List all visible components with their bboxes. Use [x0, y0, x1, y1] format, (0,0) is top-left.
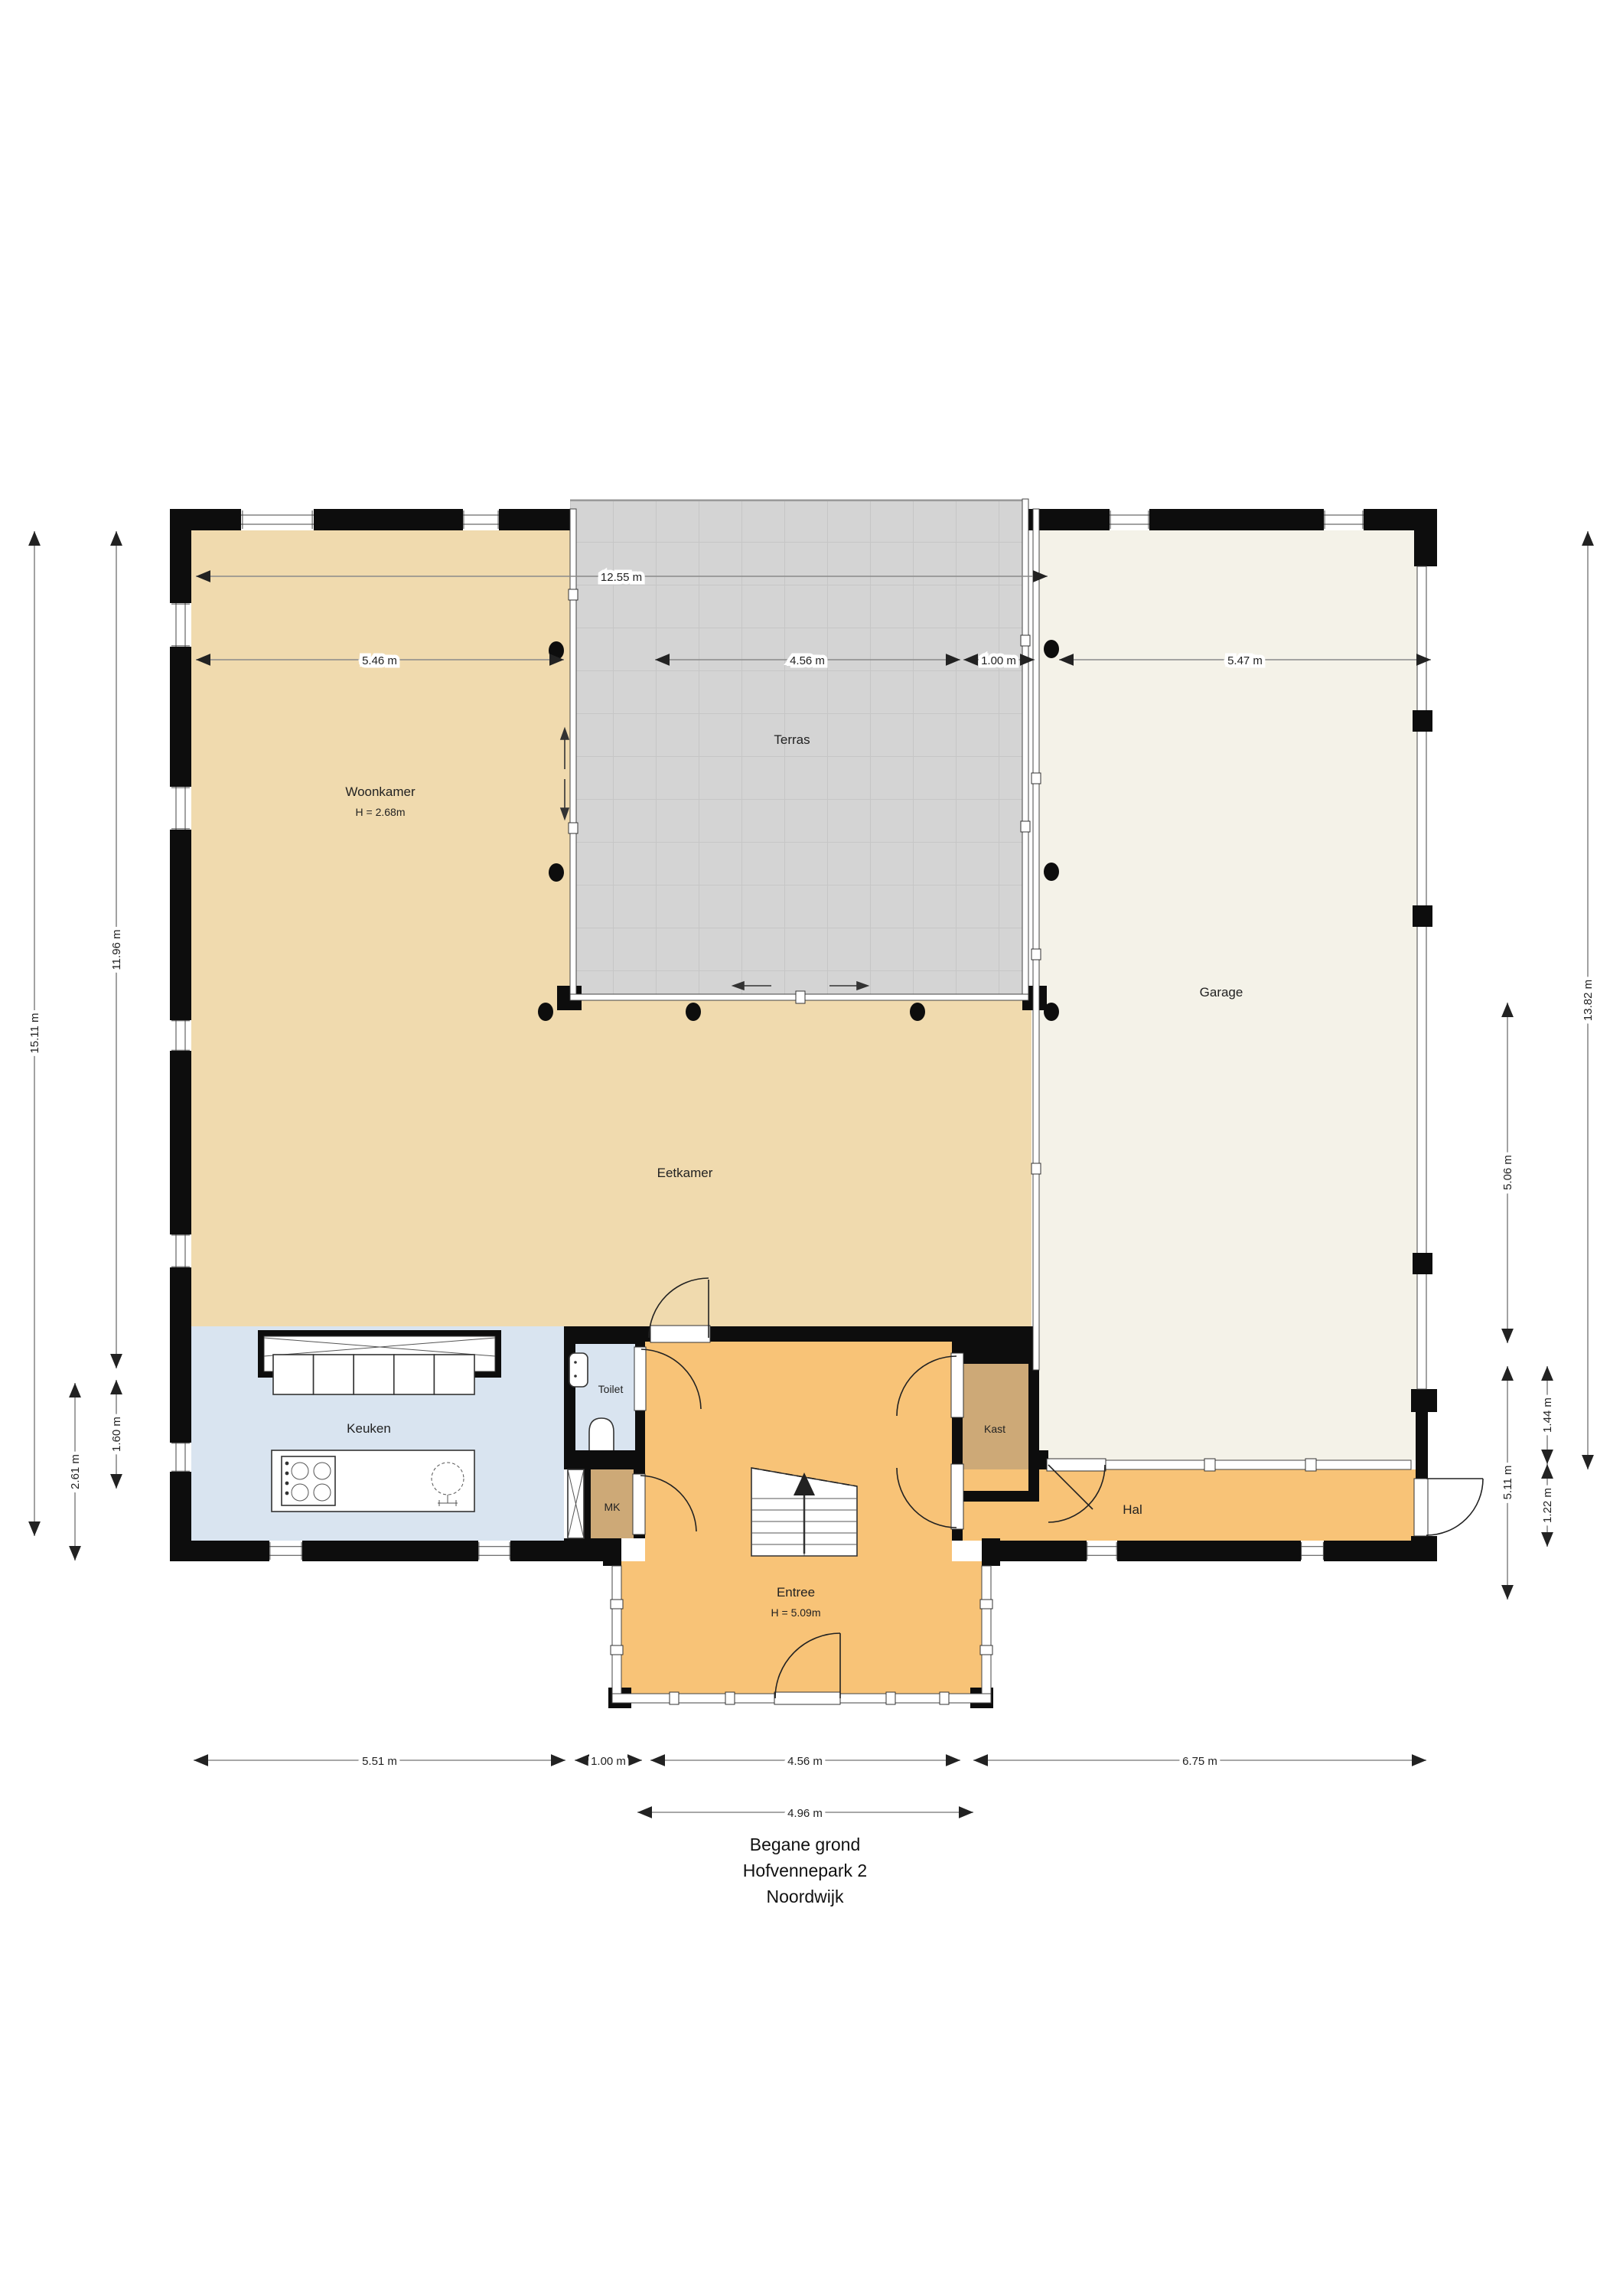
label-toilet: Toilet [598, 1383, 624, 1395]
wc-icon [589, 1418, 614, 1450]
dim-right-b: 1.22 m [1541, 1488, 1554, 1523]
dim-left-keuken: 2.61 m [69, 1454, 82, 1489]
toilet-sink-icon [569, 1353, 588, 1387]
floorplan-drawing: Woonkamer H = 2.68m Terras Garage Eetkam… [0, 0, 1623, 2296]
dim-bottom-entree: 4.96 m [787, 1807, 823, 1820]
title-city: Noordwijk [767, 1887, 844, 1906]
label-woonkamer-height: H = 2.68m [356, 806, 406, 818]
label-woonkamer: Woonkamer [345, 784, 416, 799]
stove-icon [282, 1456, 335, 1505]
dim-top-4: 5.47 m [1227, 654, 1263, 667]
dim-bottom-4: 6.75 m [1182, 1755, 1217, 1768]
dim-right-total: 13.82 m [1582, 980, 1595, 1021]
dim-right-lower: 5.11 m [1501, 1466, 1514, 1500]
label-eetkamer: Eetkamer [657, 1166, 713, 1180]
kitchen-island [272, 1450, 474, 1512]
dim-top-3: 1.00 m [981, 654, 1016, 667]
kitchen-counter [258, 1330, 501, 1394]
title-floor: Begane grond [750, 1835, 861, 1854]
dim-left-counter: 1.60 m [110, 1417, 123, 1452]
label-mk: MK [605, 1501, 621, 1513]
label-garage: Garage [1200, 985, 1243, 1000]
dim-bottom-1: 5.51 m [362, 1755, 397, 1768]
floorplan-page: Woonkamer H = 2.68m Terras Garage Eetkam… [0, 0, 1623, 2296]
dim-bottom-3: 4.56 m [787, 1755, 823, 1768]
label-entree: Entree [777, 1585, 815, 1600]
label-terras: Terras [774, 732, 810, 747]
label-hal: Hal [1123, 1502, 1142, 1517]
dim-right-upper: 5.06 m [1501, 1155, 1514, 1190]
dim-top-1: 5.46 m [362, 654, 397, 667]
dim-left-total: 15.11 m [28, 1013, 41, 1053]
dim-bottom-2: 1.00 m [591, 1755, 626, 1768]
title-address: Hofvennepark 2 [743, 1861, 867, 1880]
room-entree-vestibule [621, 1561, 982, 1694]
hal-exterior-door [1414, 1479, 1483, 1536]
dim-top-2: 4.56 m [790, 654, 825, 667]
dim-right-a: 1.44 m [1541, 1397, 1554, 1433]
label-keuken: Keuken [347, 1421, 391, 1436]
dim-top-total: 12.55 m [601, 571, 642, 584]
kitchen-cabinets [273, 1355, 474, 1394]
label-entree-height: H = 5.09m [771, 1606, 821, 1619]
title-block: Begane grond Hofvennepark 2 Noordwijk [743, 1835, 867, 1906]
label-kast: Kast [984, 1423, 1005, 1435]
dim-left-upper: 11.96 m [110, 929, 123, 970]
shaft [568, 1469, 584, 1538]
